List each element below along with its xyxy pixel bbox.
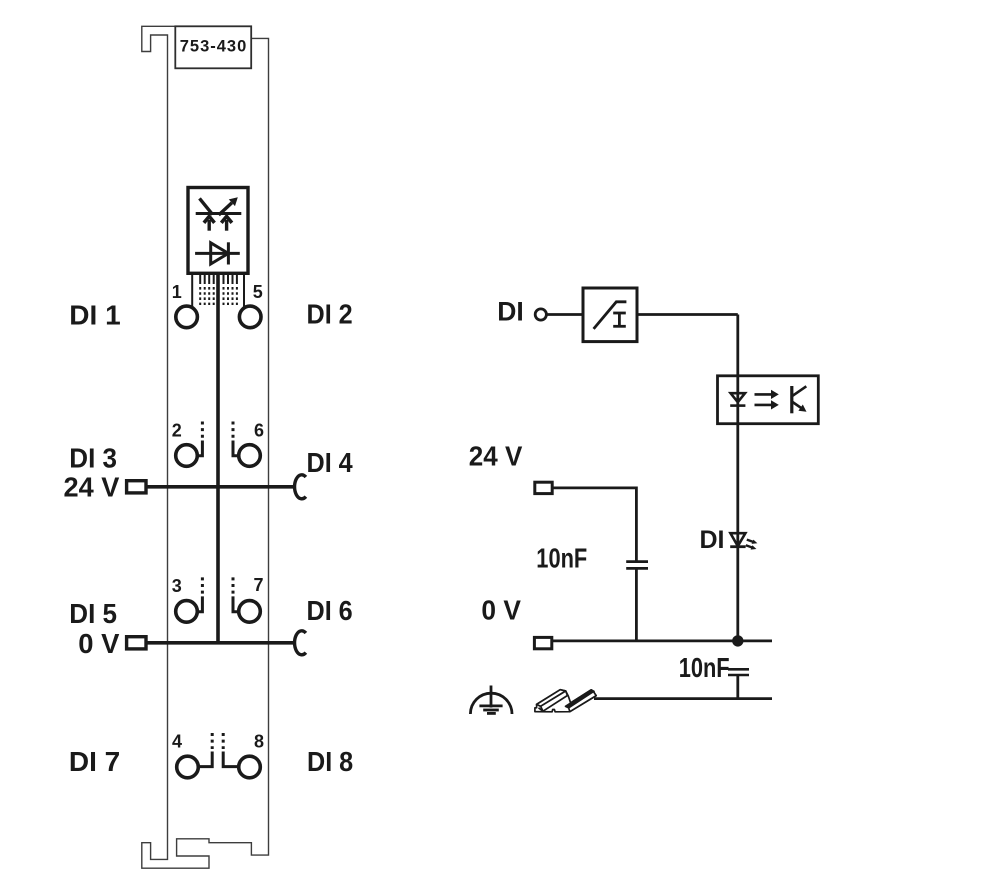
svg-text:4: 4 (172, 732, 182, 752)
svg-text:24 V: 24 V (469, 441, 523, 472)
svg-text:0 V: 0 V (481, 594, 520, 626)
svg-text:DI 2: DI 2 (307, 298, 353, 330)
svg-text:6: 6 (254, 421, 264, 441)
svg-text:10nF: 10nF (679, 653, 730, 684)
svg-text:8: 8 (254, 732, 264, 752)
svg-text:2: 2 (172, 421, 182, 441)
svg-text:24 V: 24 V (64, 471, 120, 502)
svg-text:5: 5 (253, 282, 263, 302)
svg-text:DI 7: DI 7 (69, 746, 120, 777)
svg-text:0 V: 0 V (78, 628, 120, 659)
svg-text:DI 4: DI 4 (307, 447, 353, 479)
svg-text:DI: DI (700, 526, 725, 554)
svg-text:7: 7 (253, 575, 263, 595)
svg-text:DI 5: DI 5 (69, 598, 117, 629)
svg-text:DI 1: DI 1 (69, 300, 120, 331)
svg-text:1: 1 (172, 282, 182, 302)
svg-text:DI: DI (497, 297, 524, 327)
svg-text:DI 8: DI 8 (307, 746, 353, 778)
svg-text:753-430: 753-430 (180, 37, 248, 55)
svg-text:DI 3: DI 3 (69, 443, 117, 474)
svg-text:DI 6: DI 6 (307, 595, 353, 627)
svg-text:10nF: 10nF (536, 543, 587, 574)
svg-text:3: 3 (172, 576, 182, 596)
